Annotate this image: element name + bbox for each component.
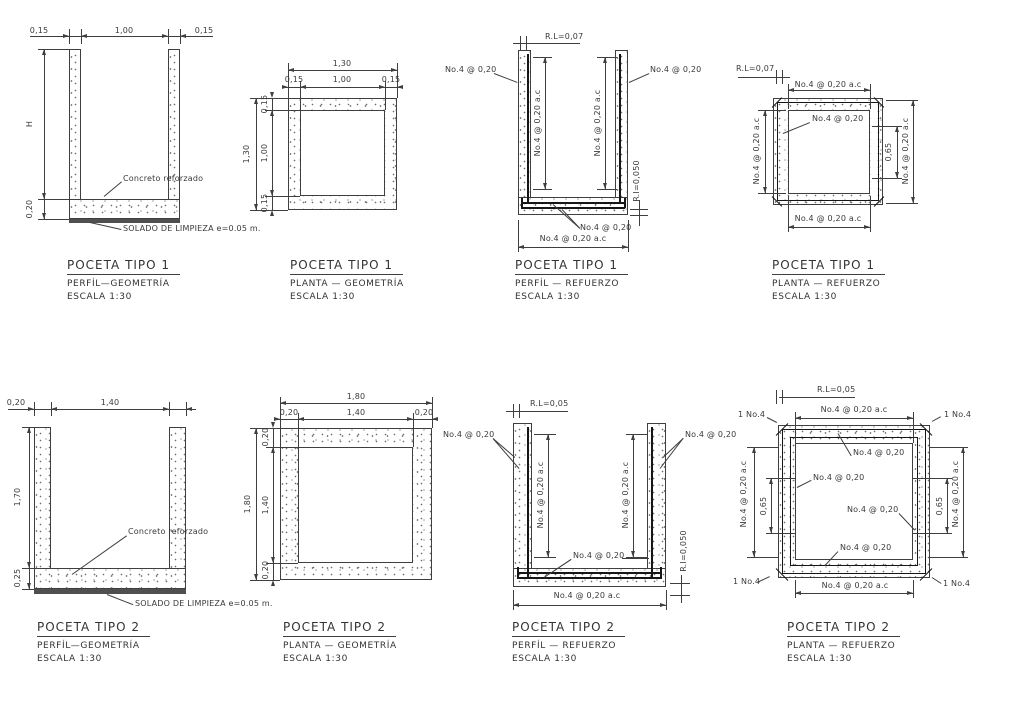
- ext-line: [930, 557, 968, 558]
- figure-title: POCETA TIPO 2: [787, 621, 890, 633]
- leader-line: [932, 416, 941, 422]
- dim-label: No.4 @ 0,20 a.c: [952, 461, 960, 528]
- ext-line: [930, 447, 968, 448]
- ext-line: [766, 533, 795, 534]
- title-underline: [787, 636, 900, 637]
- ext-line: [913, 580, 914, 598]
- dim-line: [947, 478, 948, 533]
- dim-label: No.4 @ 0,20 a.c: [822, 582, 889, 590]
- callout-label: No.4 @ 0,20: [840, 544, 891, 552]
- callout-label: No.4 @ 0,20: [847, 506, 898, 514]
- leader-line: [767, 417, 777, 423]
- figure-t2-planta-refuerzo: R.L=0,05 No.4 @ 0,20 a.c 1 No.4 1 No.4 1…: [0, 0, 1024, 725]
- figure-subtitle: PLANTA — REFUERZO: [787, 642, 895, 651]
- dim-line: [795, 418, 913, 419]
- corner-bar-label: 1 No.4: [944, 411, 971, 419]
- scale-label: ESCALA 1:30: [787, 655, 852, 664]
- callout-label: No.4 @ 0,20: [853, 449, 904, 457]
- dim-label: No.4 @ 0,20 a.c: [821, 406, 888, 414]
- ext-line: [782, 390, 783, 404]
- dim-line: [795, 593, 913, 594]
- leader-line: [932, 577, 942, 584]
- dim-label: 0,65: [936, 497, 944, 516]
- ext-line: [913, 412, 914, 443]
- ext-line: [747, 447, 778, 448]
- ext-line: [795, 580, 796, 598]
- corner-bar-label: 1 No.4: [943, 580, 970, 588]
- dim-label: No.4 @ 0,20 a.c: [740, 461, 748, 528]
- dim-line: [754, 447, 755, 557]
- dim-label: 0,65: [760, 497, 768, 516]
- ext-line: [766, 478, 795, 479]
- ext-line: [913, 478, 952, 479]
- drawing-sheet: 0,15 1,00 0,15 H 0,20 Concreto reforzado…: [0, 0, 1024, 725]
- ext-line: [776, 390, 777, 404]
- ext-line: [795, 412, 796, 443]
- cover-label: R.L=0,05: [817, 386, 855, 394]
- dim-line: [963, 447, 964, 557]
- dim-line: [779, 397, 855, 398]
- callout-label: No.4 @ 0,20: [813, 474, 864, 482]
- corner-bar-label: 1 No.4: [738, 411, 765, 419]
- dim-line: [771, 478, 772, 533]
- ext-line: [747, 557, 778, 558]
- ext-line: [913, 533, 952, 534]
